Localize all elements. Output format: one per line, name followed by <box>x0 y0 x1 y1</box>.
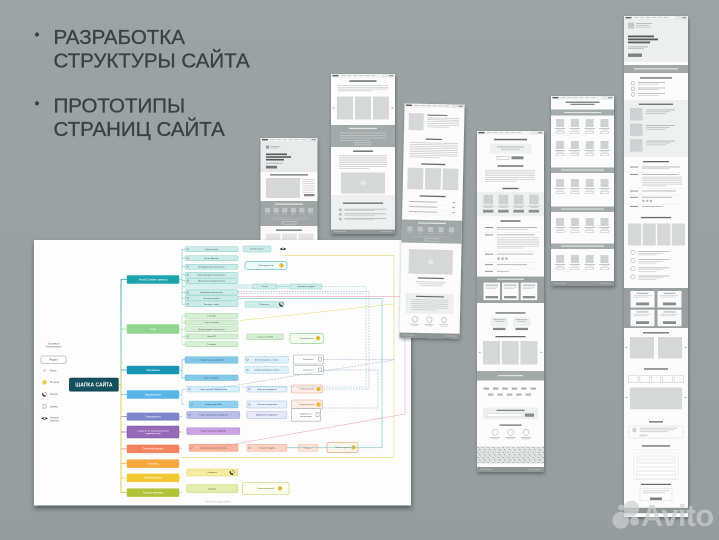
svg-text:Список членов ИП: Список членов ИП <box>257 337 274 339</box>
svg-text:Жилой (Главная страница): Жилой (Главная страница) <box>139 278 168 281</box>
svg-text:Результаты детей: Результаты детей <box>300 388 315 391</box>
svg-text:Звонок: Звонок <box>50 393 59 396</box>
svg-text:О нас: О нас <box>150 328 157 331</box>
svg-text:СТРУКТУРЫ САЙТА: СТРУКТУРЫ САЙТА <box>54 49 250 73</box>
svg-text:Раздел: Раздел <box>50 359 59 362</box>
svg-text:Записаться: Записаться <box>303 359 314 361</box>
svg-text:Детские программы + отзывы: Детские программы + отзывы <box>255 359 279 361</box>
svg-text:кабинет: кабинет <box>50 419 60 422</box>
svg-text:Общая страница программ: Общая страница программ <box>200 360 225 362</box>
svg-text:Международные партнерства: Международные партнерства <box>198 329 225 331</box>
svg-text:Наши преимущества (5 причин): Наши преимущества (5 причин) <box>198 274 226 276</box>
svg-text:подразделении: подразделении <box>145 433 161 435</box>
svg-text:обозначения: обозначения <box>46 345 62 349</box>
svg-text:Наши ИП: Наши ИП <box>207 336 216 338</box>
svg-text:Встреча: Встреча <box>50 381 60 384</box>
svg-text:Конференция Weta: Конференция Weta <box>205 403 223 406</box>
svg-text:Описание конференции: Описание конференции <box>257 403 277 406</box>
svg-text:Интернет магазин: Интернет магазин <box>204 298 220 300</box>
svg-text:Личный кабинет: Личный кабинет <box>144 477 163 480</box>
svg-text:Результаты детей: Результаты детей <box>257 487 273 490</box>
svg-text:Программы: Программы <box>146 369 160 372</box>
svg-text:Контакты + карта: Контакты + карта <box>204 304 220 306</box>
svg-text:ПРОТОТИПЫ: ПРОТОТИПЫ <box>54 95 186 118</box>
svg-text:Сведения об образовательном: Сведения об образовательном <box>137 430 169 432</box>
svg-text:Мероприятия: Мероприятия <box>145 393 161 396</box>
svg-text:Главный экран: Главный экран <box>205 248 218 251</box>
svg-text:Корзина магазина: Корзина магазина <box>143 491 164 494</box>
svg-text:Специалисты: Специалисты <box>145 416 161 419</box>
svg-text:О турнире: О турнире <box>207 315 216 317</box>
svg-text:ШАПКА САЙТА: ШАПКА САЙТА <box>75 380 113 388</box>
svg-text:Страницы по городам: Страницы по городам <box>297 286 316 288</box>
svg-text:Прототип для сайта: Прототип для сайта <box>205 500 231 504</box>
svg-text:Общая страница со сведениями: Общая страница со сведениями <box>201 431 226 433</box>
svg-text:Заявка: Заявка <box>50 405 58 408</box>
svg-text:Avito: Avito <box>641 499 714 533</box>
svg-text:консультацию: консультацию <box>300 416 312 418</box>
svg-text:Преподаватели: Преподаватели <box>299 338 313 340</box>
svg-text:Полезный магазин: Полезный магазин <box>143 448 164 451</box>
svg-text:Ближайшие мероприятия: Ближайшие мероприятия <box>200 291 222 294</box>
svg-text:Позвонить: Позвонить <box>207 472 217 474</box>
svg-text:Результаты детей: Результаты детей <box>300 403 315 406</box>
svg-text:Корзина: Корзина <box>208 488 217 490</box>
svg-text:Общая страница интернет магази: Общая страница интернет магазина <box>200 447 227 449</box>
svg-text:Программы для дошкольников: Программы для дошкольников <box>198 280 225 282</box>
svg-text:Семейные программы + отзывы: Семейные программы + отзывы <box>254 369 280 372</box>
svg-text:СТРАНИЦ САЙТА: СТРАНИЦ САЙТА <box>54 117 226 141</box>
svg-text:Преподаватели: Преподаватели <box>259 265 275 267</box>
svg-text:Описание продукта: Описание продукта <box>259 447 275 449</box>
svg-text:Подробней о специалисте: Подробней о специалисте <box>256 414 278 417</box>
svg-text:Личный кабинет: Личный кабинет <box>250 248 264 251</box>
svg-text:Записаться: Записаться <box>303 370 314 372</box>
svg-text:Блок с отзывами: Блок с отзывами <box>204 377 219 379</box>
svg-text:РАЗРАБОТКА: РАЗРАБОТКА <box>54 26 186 49</box>
svg-text:Кто мы (Миссия): Кто мы (Миссия) <box>204 258 219 260</box>
svg-text:Якорь: Якорь <box>50 369 57 372</box>
svg-text:Преподаватели и сообщество: Преподаватели и сообщество <box>198 266 224 268</box>
svg-text:5 человек: 5 человек <box>207 344 216 346</box>
svg-text:Общая страница про специалисто: Общая страница про специалистов <box>199 415 227 417</box>
svg-text:Описание мероприятия: Описание мероприятия <box>257 389 277 391</box>
svg-text:Позвонить: Позвонить <box>259 304 269 306</box>
svg-text:Спорт наставник: Спорт наставник <box>204 322 219 324</box>
svg-text:Общая страница с мероприятиями: Общая страница с мероприятиями <box>200 389 228 391</box>
svg-text:Набор: Набор <box>262 286 268 288</box>
svg-text:Контакты: Контакты <box>148 462 159 465</box>
